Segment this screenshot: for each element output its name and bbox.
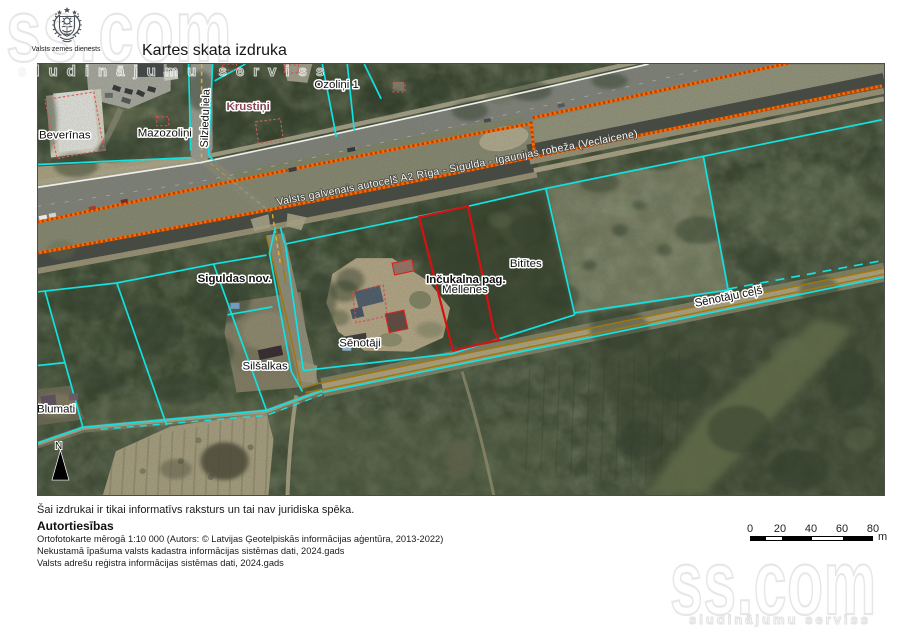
svg-text:Silšalkas: Silšalkas bbox=[243, 361, 288, 373]
svg-text:Silziedu iela: Silziedu iela bbox=[199, 88, 213, 148]
svg-text:Mazozoliņi: Mazozoliņi bbox=[138, 128, 192, 140]
svg-text:Bitītes: Bitītes bbox=[510, 258, 542, 270]
svg-text:Blumati: Blumati bbox=[38, 403, 75, 415]
svg-text:N: N bbox=[55, 441, 62, 452]
svg-text:Beverīnas: Beverīnas bbox=[39, 130, 91, 142]
svg-text:Siguldas nov.: Siguldas nov. bbox=[198, 273, 272, 285]
svg-text:Ozoliņi 1: Ozoliņi 1 bbox=[314, 79, 359, 91]
svg-text:Mellenes: Mellenes bbox=[442, 284, 488, 296]
svg-text:Sēnotāji: Sēnotāji bbox=[339, 338, 380, 350]
svg-text:Krustiņi: Krustiņi bbox=[227, 101, 270, 113]
